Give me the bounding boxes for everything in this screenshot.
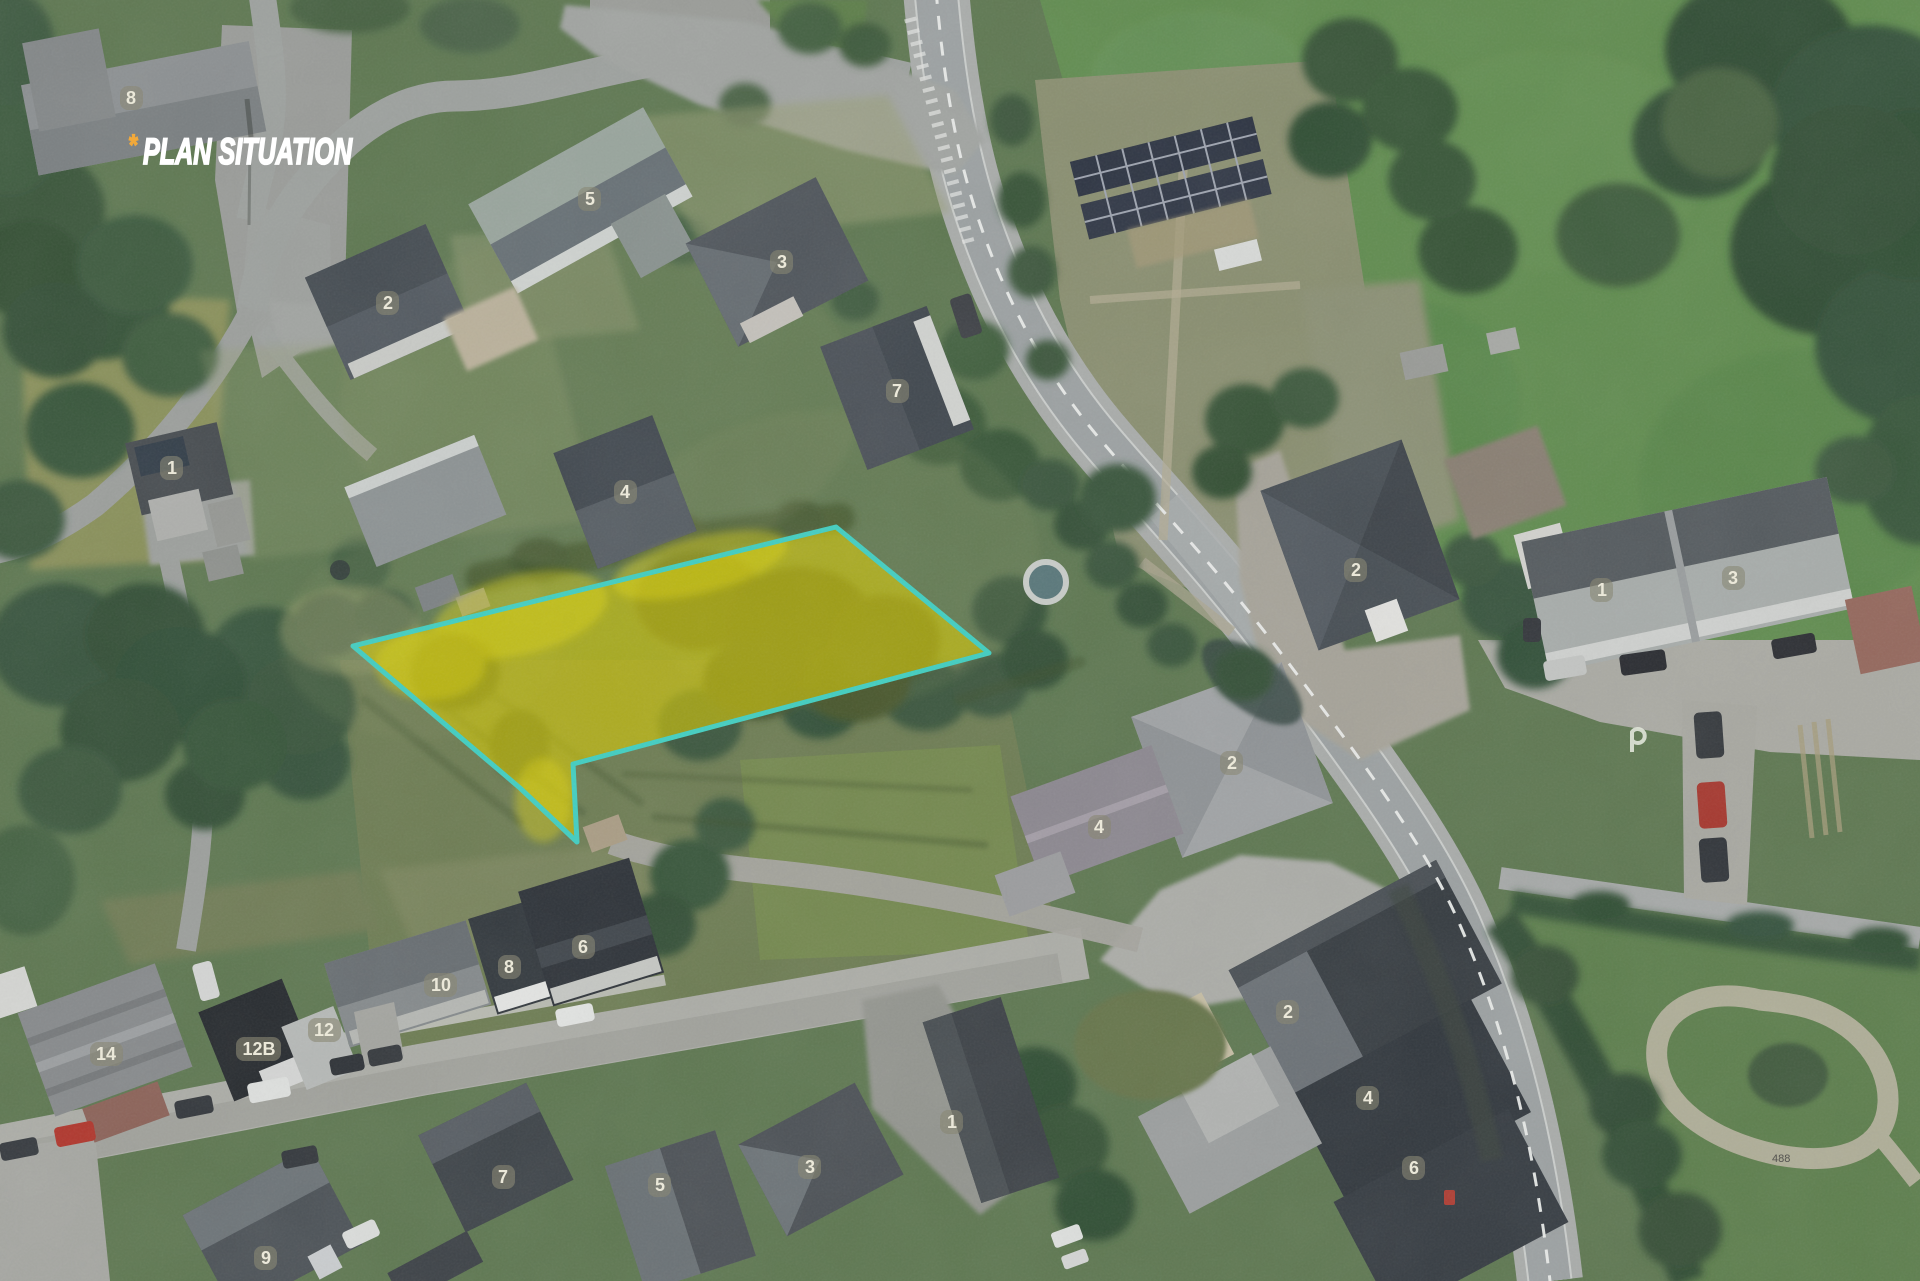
svg-text:PLAN SITUATION: PLAN SITUATION xyxy=(143,130,353,172)
svg-text:*: * xyxy=(128,128,138,161)
